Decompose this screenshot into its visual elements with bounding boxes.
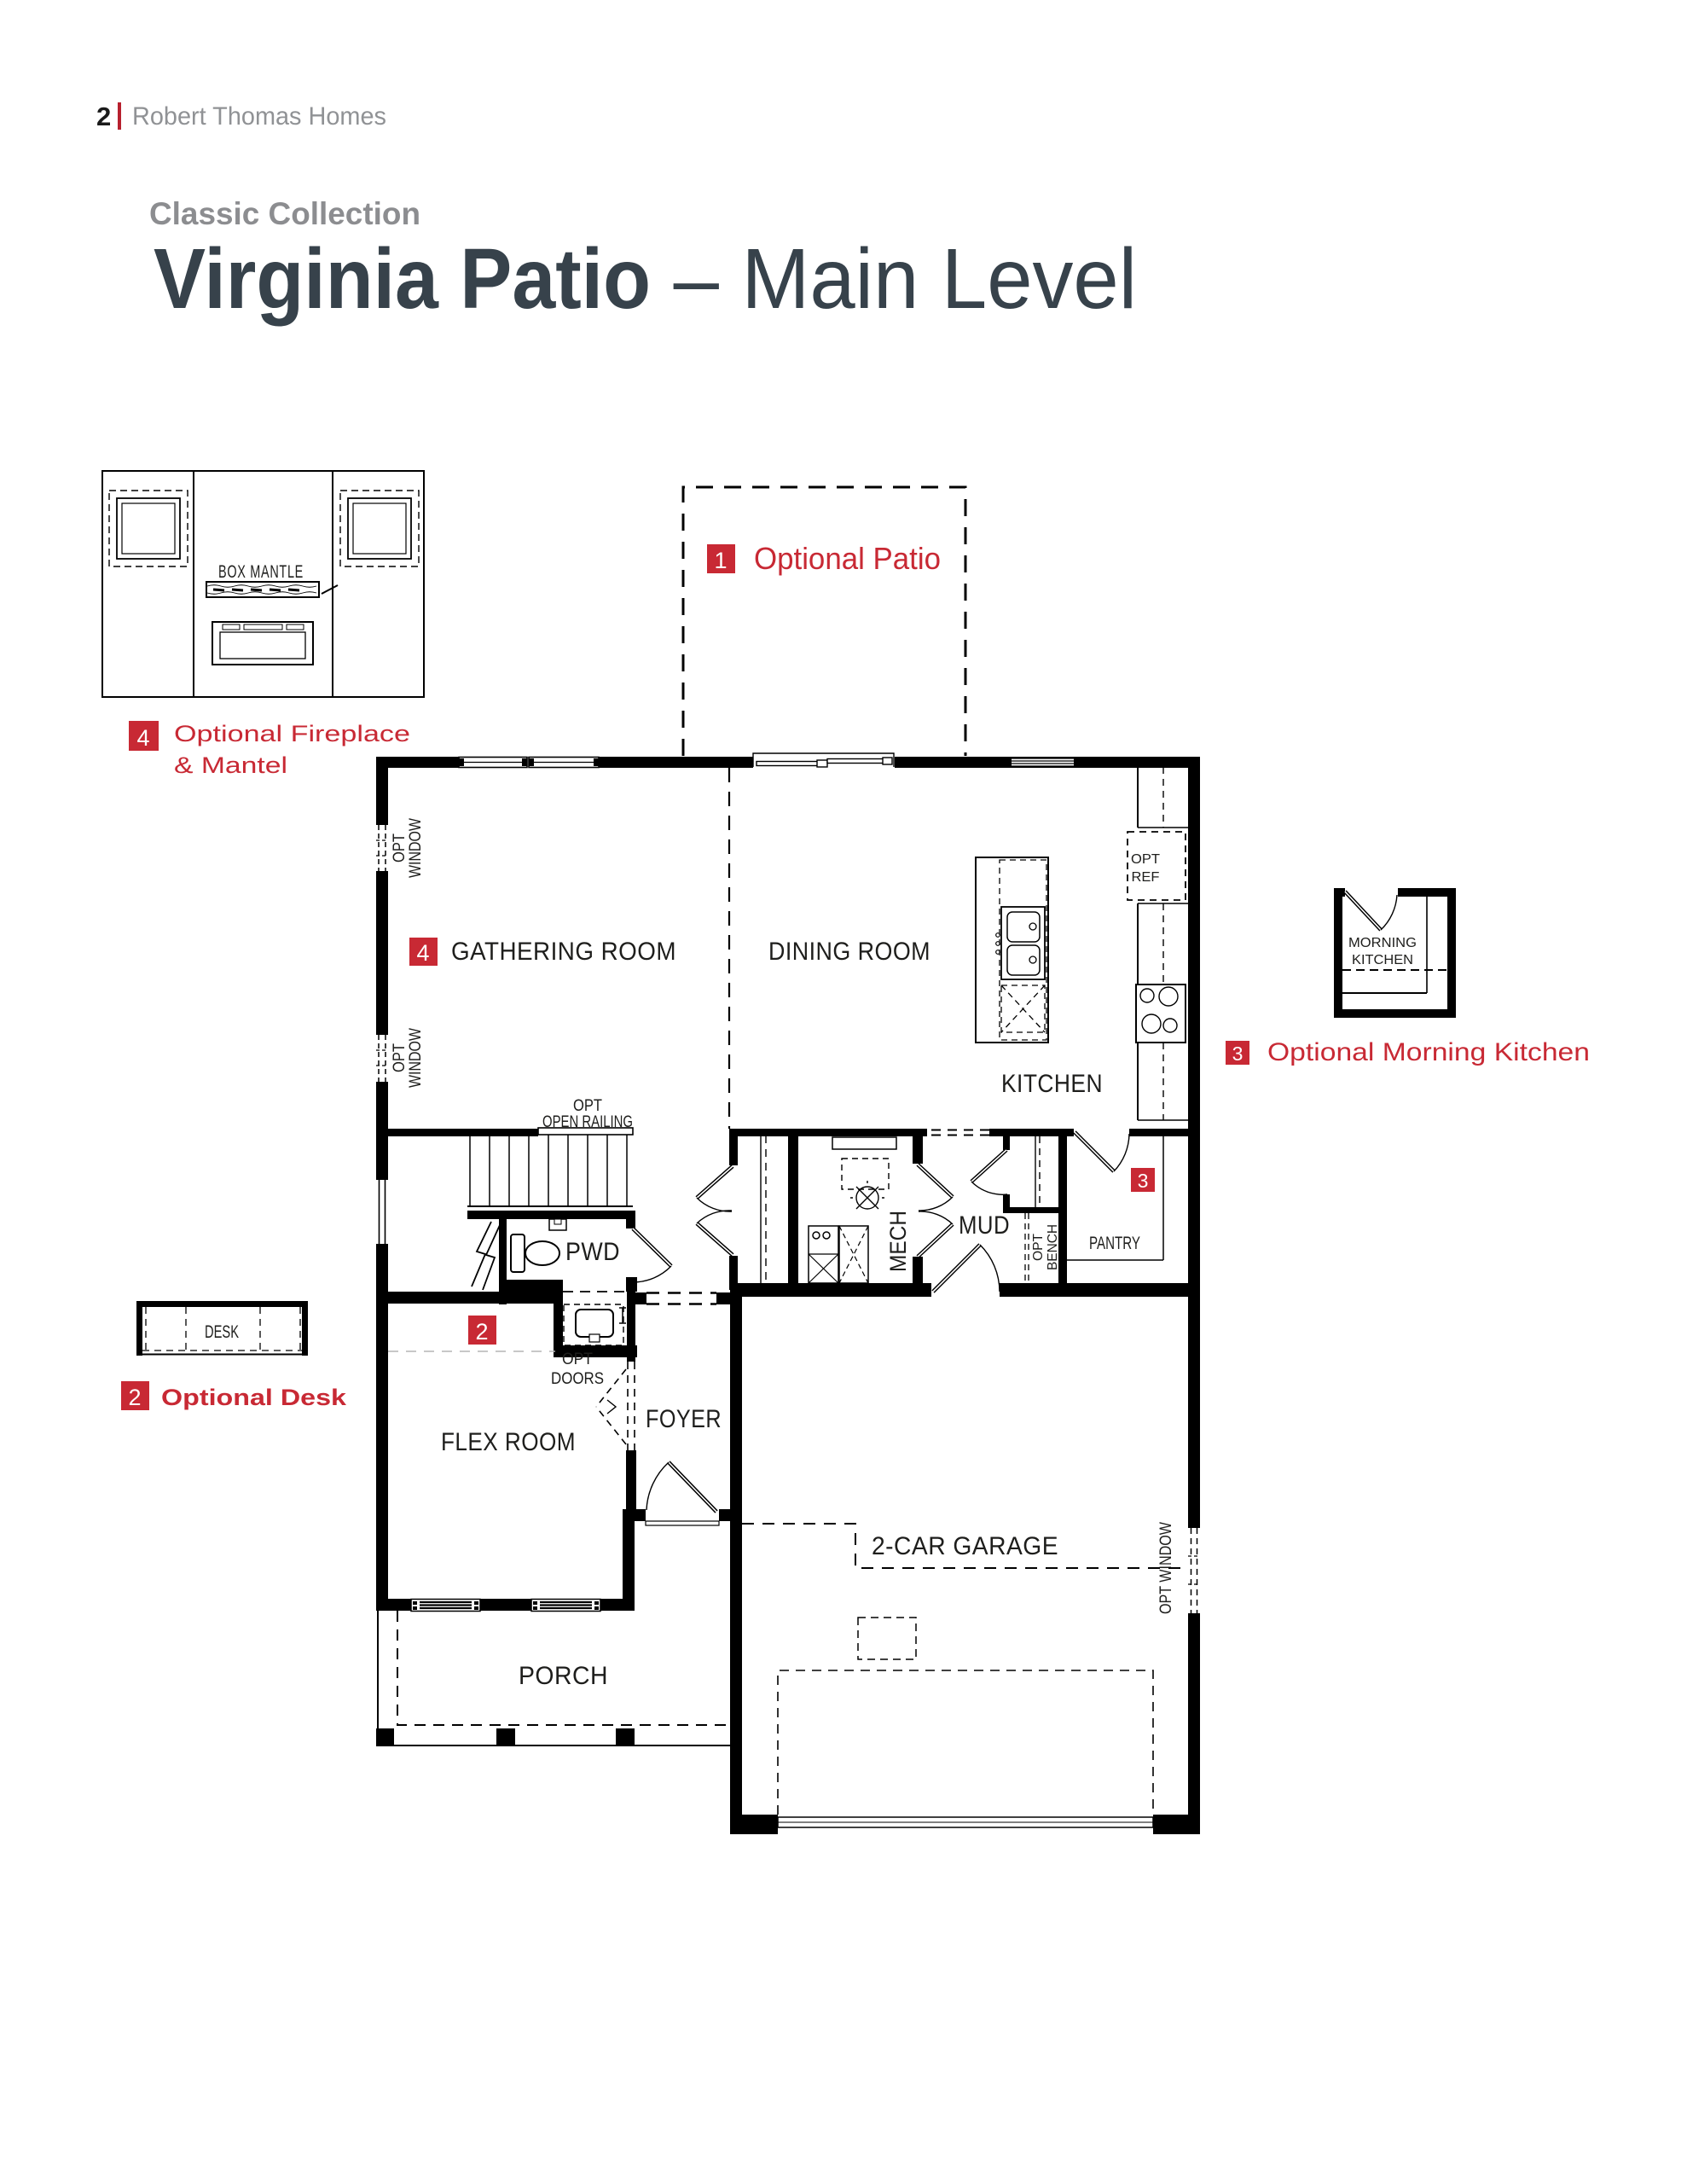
svg-text:MORNING: MORNING [1348, 936, 1417, 950]
svg-text:Optional Fireplace: Optional Fireplace [174, 721, 410, 746]
svg-text:Optional Desk: Optional Desk [161, 1385, 347, 1410]
svg-text:2: 2 [128, 1385, 141, 1410]
svg-text:DESK: DESK [205, 1322, 239, 1342]
svg-text:& Mantel: & Mantel [174, 752, 287, 778]
svg-text:FLEX ROOM: FLEX ROOM [441, 1428, 576, 1456]
svg-text:WINDOW: WINDOW [407, 818, 425, 878]
svg-text:OPT: OPT [1031, 1234, 1046, 1261]
svg-text:Classic Collection: Classic Collection [149, 196, 420, 231]
svg-text:PWD: PWD [565, 1238, 620, 1266]
svg-text:BOX MANTLE: BOX MANTLE [218, 562, 304, 582]
svg-text:1: 1 [714, 548, 727, 573]
svg-text:2-CAR GARAGE: 2-CAR GARAGE [872, 1532, 1058, 1560]
svg-text:REF: REF [1132, 870, 1160, 885]
svg-text:GATHERING ROOM: GATHERING ROOM [451, 938, 676, 966]
svg-text:KITCHEN: KITCHEN [1352, 953, 1413, 967]
svg-text:3: 3 [1232, 1043, 1244, 1065]
svg-text:OPT: OPT [1131, 852, 1160, 867]
svg-text:MUD: MUD [959, 1211, 1010, 1240]
svg-text:MECH: MECH [885, 1211, 911, 1272]
svg-text:WINDOW: WINDOW [407, 1028, 425, 1088]
svg-text:OPT: OPT [573, 1097, 602, 1115]
svg-text:BENCH: BENCH [1046, 1224, 1060, 1270]
svg-text:FOYER: FOYER [646, 1405, 722, 1433]
svg-text:4: 4 [416, 940, 429, 966]
svg-text:OPT: OPT [391, 1043, 409, 1072]
svg-text:Robert Thomas Homes: Robert Thomas Homes [132, 102, 386, 131]
svg-text:Optional Morning Kitchen: Optional Morning Kitchen [1267, 1038, 1590, 1066]
svg-text:4: 4 [136, 725, 149, 751]
svg-text:OPT: OPT [391, 834, 409, 863]
svg-text:Virginia Patio – Main Level: Virginia Patio – Main Level [154, 231, 1137, 327]
svg-text:OPEN RAILING: OPEN RAILING [542, 1113, 633, 1131]
svg-text:PANTRY: PANTRY [1089, 1234, 1140, 1253]
svg-text:PORCH: PORCH [519, 1662, 608, 1690]
svg-text:3: 3 [1138, 1170, 1149, 1192]
svg-text:Optional Patio: Optional Patio [754, 541, 941, 576]
svg-text:2: 2 [475, 1319, 488, 1345]
svg-text:DINING ROOM: DINING ROOM [768, 938, 930, 966]
svg-text:2: 2 [96, 102, 111, 131]
svg-text:DOORS: DOORS [551, 1370, 604, 1388]
svg-text:KITCHEN: KITCHEN [1001, 1070, 1103, 1098]
svg-text:OPT: OPT [562, 1350, 593, 1368]
